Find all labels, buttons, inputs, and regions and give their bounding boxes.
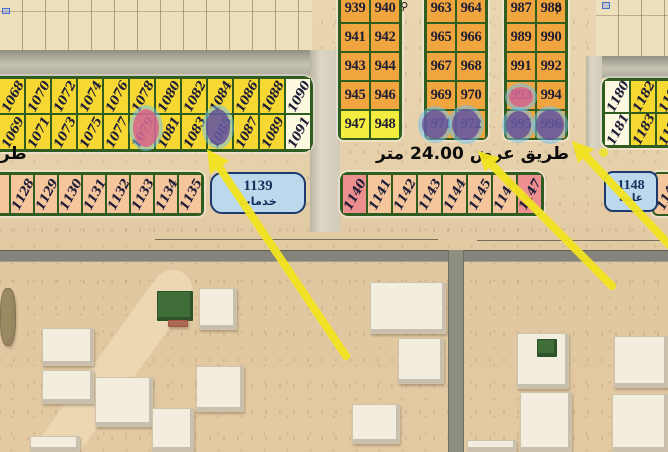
plot-1078: 1078: [129, 78, 155, 114]
plot-number: 1141: [365, 176, 394, 212]
plot-966: 966: [456, 23, 486, 52]
building: [42, 370, 94, 404]
plot-1180: 1180: [604, 80, 630, 113]
plot-number: 996: [541, 116, 562, 133]
plot-number: 1142: [390, 176, 419, 212]
plot-number: 963: [431, 0, 452, 17]
plot-number: 1180: [603, 79, 632, 115]
plot-1181: 1181: [604, 113, 630, 146]
plot-991: 991: [506, 52, 536, 81]
map-symbol: [2, 8, 10, 14]
arrowhead-1085: [207, 149, 229, 174]
plot-number: 964: [461, 0, 482, 17]
plot-number: 1135: [176, 176, 205, 212]
block-1067-1091: 1068107010721074107610781080108210841086…: [0, 76, 313, 152]
plot-number: 968: [461, 58, 482, 75]
building: [520, 392, 572, 452]
plot-number: 1081: [154, 114, 183, 150]
plot-1145: 1145: [467, 174, 492, 214]
plot-993: 993: [506, 81, 536, 110]
building: [196, 366, 244, 412]
plot-number: 946: [375, 87, 396, 104]
plan-street-vertical: [586, 56, 602, 148]
plot-1133: 1133: [130, 174, 154, 214]
plot-number: 1074: [76, 78, 105, 114]
plot-number: 1130: [56, 176, 85, 212]
plot-965: 965: [426, 23, 456, 52]
courtyard: [537, 339, 557, 357]
plot-number: 1183: [629, 112, 658, 148]
services-box-1148: 1148 عامة: [604, 171, 658, 212]
row-1128-1135: 11281129113011311132113311341135: [0, 172, 204, 216]
plot-number: 1091: [284, 114, 313, 150]
plot-number: 970: [461, 87, 482, 104]
plot-number: 990: [541, 29, 562, 46]
plot-number: 939: [345, 0, 366, 17]
plot-number: 965: [431, 29, 452, 46]
plot-1142: 1142: [392, 174, 417, 214]
horizontal-road: [0, 250, 668, 262]
plot-1140: 1140: [342, 174, 367, 214]
plot-1079: 1079: [129, 114, 155, 150]
plot-967: 967: [426, 52, 456, 81]
plot-number: 948: [375, 116, 396, 133]
building: [95, 377, 153, 427]
plot-number: 987: [511, 0, 532, 17]
plot-1074: 1074: [77, 78, 103, 114]
building: [612, 394, 668, 452]
plot-number: 943: [345, 58, 366, 75]
plot-1182: 1182: [630, 80, 656, 113]
plot-944: 944: [370, 52, 400, 81]
plot-1183: 1183: [630, 113, 656, 146]
plot-969: 969: [426, 81, 456, 110]
lamp-post-icon: ⚲: [399, 0, 410, 14]
plot-947: 947: [340, 110, 370, 139]
plot-1087: 1087: [233, 114, 259, 150]
plot-number: 1087: [232, 114, 261, 150]
plot-number: 993: [511, 87, 532, 104]
plot-1130: 1130: [58, 174, 82, 214]
plot-number: 994: [541, 87, 562, 104]
building: [370, 282, 446, 334]
plot-number: 971: [431, 116, 452, 133]
trees: [0, 288, 16, 346]
plot-1084: 1084: [207, 78, 233, 114]
plot-1088: 1088: [259, 78, 285, 114]
plot-948: 948: [370, 110, 400, 139]
plot-939: 939: [340, 0, 370, 23]
plot-994: 994: [536, 81, 566, 110]
plan-street-vertical: [310, 50, 340, 232]
plot-1085: 1085: [207, 114, 233, 150]
boundary-line: [477, 240, 668, 241]
boundary-line: [155, 239, 438, 240]
plot-1082: 1082: [181, 78, 207, 114]
services-number: 1139: [243, 179, 272, 195]
plot-number: 966: [461, 29, 482, 46]
plot-990: 990: [536, 23, 566, 52]
plot-1077: 1077: [103, 114, 129, 150]
plot-946: 946: [370, 81, 400, 110]
plot-1068: 1068: [0, 78, 25, 114]
plot-number: 1085: [206, 114, 235, 150]
plot-number: 1080: [154, 78, 183, 114]
plot-number: 1079: [128, 114, 157, 150]
plot-996: 996: [536, 110, 566, 139]
plot-number: 1146: [490, 176, 519, 212]
plot-map: 1068107010721074107610781080108210841086…: [0, 0, 668, 452]
road-width-label-partial: طر: [0, 144, 34, 170]
block-987-996: 987988989990991992993994995996: [504, 0, 568, 140]
plot-number: 1129: [32, 176, 61, 212]
plot-number: 967: [431, 58, 452, 75]
plot-1134: 1134: [154, 174, 178, 214]
plot-number: 1083: [180, 114, 209, 150]
plot-number: 1070: [24, 78, 53, 114]
road-width-label: طريق عرض 24.00 متر: [340, 144, 605, 170]
building: [168, 320, 188, 327]
services-label: خدمات: [239, 195, 277, 207]
plot-1081: 1081: [155, 114, 181, 150]
plot-943: 943: [340, 52, 370, 81]
plot-number: 1078: [128, 78, 157, 114]
plot-968: 968: [456, 52, 486, 81]
plot-1075: 1075: [77, 114, 103, 150]
building: [42, 328, 94, 366]
plot-945: 945: [340, 81, 370, 110]
plot-number: 945: [345, 87, 366, 104]
plot-1083: 1083: [181, 114, 207, 150]
plot-1072: 1072: [51, 78, 77, 114]
plot-cut: [0, 174, 10, 214]
map-symbol: [602, 2, 610, 9]
plot-1135: 1135: [178, 174, 202, 214]
plot-number: 1082: [180, 78, 209, 114]
plot-1144: 1144: [442, 174, 467, 214]
building: [352, 404, 400, 444]
plot-942: 942: [370, 23, 400, 52]
plot-1091: 1091: [285, 114, 311, 150]
building: [30, 436, 80, 452]
plot-number: 1073: [50, 114, 79, 150]
plot-1090: 1090: [285, 78, 311, 114]
plan-road-top-left: [0, 50, 338, 76]
services-box-1139: 1139 خدمات: [210, 172, 306, 214]
plot-1131: 1131: [82, 174, 106, 214]
plot-number: 940: [375, 0, 396, 17]
plot-1128: 1128: [10, 174, 34, 214]
plot-number: 1132: [104, 176, 133, 212]
plot-941: 941: [340, 23, 370, 52]
building: [199, 288, 237, 330]
building: [152, 408, 194, 452]
plot-number: 1181: [603, 112, 632, 148]
plot-number: 1077: [102, 114, 131, 150]
plot-number: 991: [511, 58, 532, 75]
plot-989: 989: [506, 23, 536, 52]
plot-940: 940: [370, 0, 400, 23]
plot-number: 1068: [0, 78, 26, 114]
plot-number: 1143: [415, 176, 444, 212]
services-label: عامة: [619, 193, 643, 204]
plot-number: 989: [511, 29, 532, 46]
plot-number: 1090: [284, 78, 313, 114]
plot-1086: 1086: [233, 78, 259, 114]
plot-number: 1075: [76, 114, 105, 150]
plot-992: 992: [536, 52, 566, 81]
plot-number: 1076: [102, 78, 131, 114]
plot-number: 1072: [50, 78, 79, 114]
plot-number: 1144: [440, 176, 469, 212]
plot-1076: 1076: [103, 78, 129, 114]
plot-number: 1147: [515, 176, 544, 212]
plot-number: 1131: [80, 176, 109, 212]
building: [398, 338, 444, 384]
plot-1070: 1070: [25, 78, 51, 114]
plot-963: 963: [426, 0, 456, 23]
plot-1073: 1073: [51, 114, 77, 150]
plot-987: 987: [506, 0, 536, 23]
unplotted-grid-left: [0, 0, 312, 52]
plot-number: 1133: [128, 176, 157, 212]
plot-number: 942: [375, 29, 396, 46]
building: [614, 336, 668, 388]
row-1140-1147: 11401141114211431144114511461147: [340, 172, 544, 216]
plot-number: 1084: [206, 78, 235, 114]
block-1180-1185: 118011821184118111831185: [602, 78, 668, 148]
plot-number: 941: [345, 29, 366, 46]
plot-971: 971: [426, 110, 456, 139]
plot-1089: 1089: [259, 114, 285, 150]
plot-number: 972: [461, 116, 482, 133]
plot-number: 1134: [152, 176, 181, 212]
plot-1143: 1143: [417, 174, 442, 214]
plot-1132: 1132: [106, 174, 130, 214]
block-939-948: 939940941942943944945946947948: [338, 0, 402, 140]
plot-1129: 1129: [34, 174, 58, 214]
plot-1146: 1146: [492, 174, 517, 214]
vertical-road: [448, 250, 464, 452]
yellow-dot: [599, 148, 608, 157]
plot-970: 970: [456, 81, 486, 110]
plot-972: 972: [456, 110, 486, 139]
plot-number: 992: [541, 58, 562, 75]
plot-1080: 1080: [155, 78, 181, 114]
plot-number: 995: [511, 116, 532, 133]
plot-964: 964: [456, 0, 486, 23]
services-number: 1148: [617, 179, 644, 194]
plot-number: 1088: [258, 78, 287, 114]
plot-995: 995: [506, 110, 536, 139]
plot-1141: 1141: [367, 174, 392, 214]
building: [467, 440, 517, 452]
plot-number: 1089: [258, 114, 287, 150]
plot-number: 1145: [465, 176, 494, 212]
plot-number: 947: [345, 116, 366, 133]
plot-number: 969: [431, 87, 452, 104]
plot-1147: 1147: [517, 174, 542, 214]
plot-number: 944: [375, 58, 396, 75]
block-963-972: 963964965966967968969970971972: [424, 0, 488, 140]
plot-number: 1140: [340, 176, 369, 212]
courtyard: [157, 291, 193, 321]
plot-number: 1086: [232, 78, 261, 114]
plot-number: 1128: [8, 176, 37, 212]
plot-number: 1182: [629, 79, 658, 115]
